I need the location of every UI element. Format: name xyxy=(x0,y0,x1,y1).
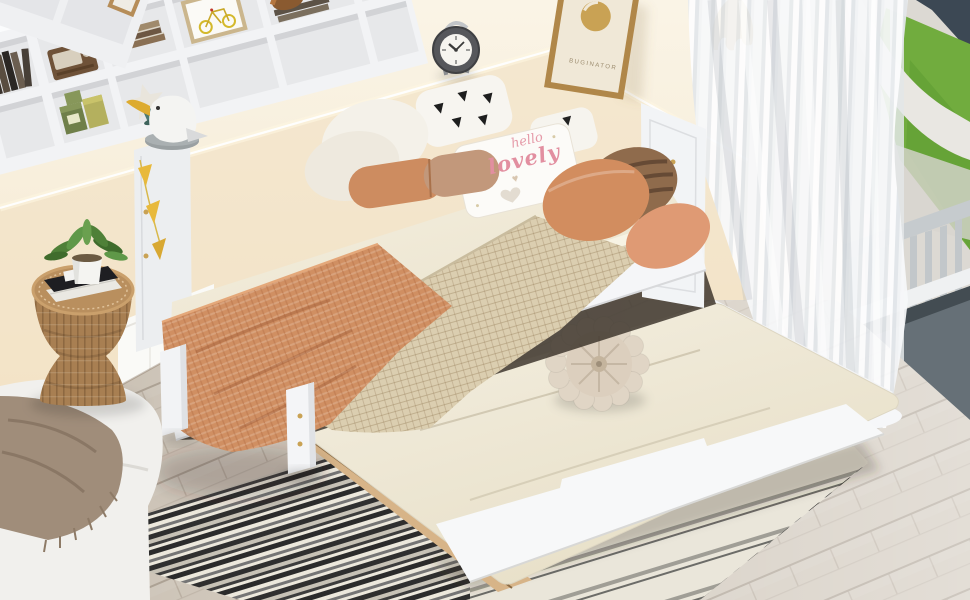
bedroom-product-photo: hello lovely ♥ BUGINATOR xyxy=(0,0,970,600)
scene-illustration xyxy=(0,0,970,600)
